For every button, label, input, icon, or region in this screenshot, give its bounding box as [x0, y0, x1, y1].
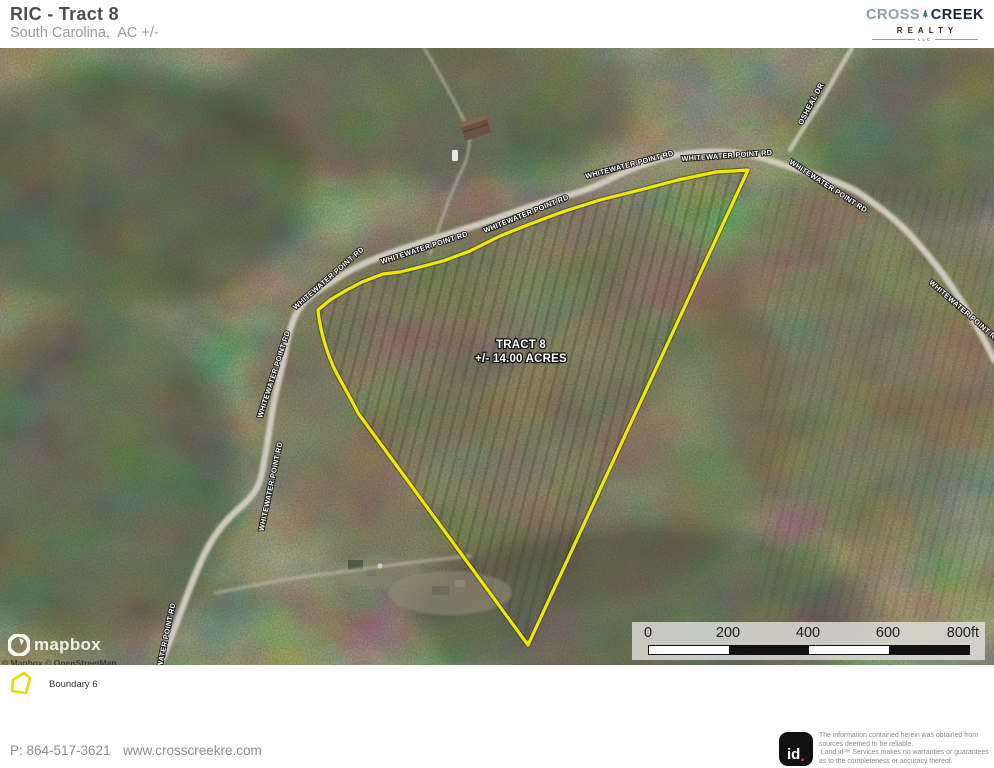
- land-id-badge-text: id: [787, 749, 800, 761]
- mapbox-icon: [8, 634, 30, 656]
- legend: Boundary 6: [0, 665, 994, 730]
- brand-llc-row: LLC: [866, 37, 984, 42]
- disclaimer-line: as to the completeness or accuracy there…: [819, 758, 994, 767]
- pine-tree-icon: [922, 3, 929, 24]
- boundary-polygon-icon: [8, 670, 34, 698]
- brand-logo: CROSS CREEK REALTY LLC: [866, 5, 984, 42]
- scale-segment: [889, 646, 969, 654]
- scale-tick: 400: [796, 625, 820, 641]
- scale-tick: 200: [716, 625, 740, 641]
- map-canvas[interactable]: TRACT 8 +/- 14.00 ACRES WHITEWATER POINT…: [0, 48, 994, 665]
- tract-label-acres: +/- 14.00 ACRES: [475, 353, 567, 365]
- page-subtitle: South Carolina, AC +/-: [10, 25, 159, 41]
- scale-tick: 600: [876, 625, 900, 641]
- brand-cross-text: CROSS: [866, 7, 920, 23]
- aerial-imagery: TRACT 8 +/- 14.00 ACRES WHITEWATER POINT…: [0, 48, 994, 665]
- brand-creek-text: CREEK: [931, 7, 984, 23]
- footer-phone: P: 864-517-3621: [10, 743, 111, 758]
- footer-website: www.crosscreekre.com: [123, 743, 262, 758]
- page-title: RIC - Tract 8: [10, 4, 119, 25]
- header: RIC - Tract 8 South Carolina, AC +/- CRO…: [0, 0, 994, 48]
- scale-segment: [649, 646, 729, 654]
- scale-bar: 0 200 400 600 800ft: [632, 622, 985, 660]
- scale-tick: 0: [644, 625, 652, 641]
- scale-tick: 800ft: [947, 625, 979, 641]
- page: RIC - Tract 8 South Carolina, AC +/- CRO…: [0, 0, 994, 768]
- disclaimer-line: sources deemed to be reliable.: [819, 741, 994, 750]
- footer-disclaimer: The information contained herein was obt…: [819, 732, 994, 766]
- footer: P: 864-517-3621 www.crosscreekre.com id …: [0, 730, 994, 768]
- map-attribution: © Mapbox © OpenStreetMap: [2, 658, 117, 665]
- mapbox-logo[interactable]: mapbox: [8, 634, 101, 656]
- mapbox-wordmark: mapbox: [34, 635, 101, 655]
- land-id-badge-dot: .: [800, 751, 805, 761]
- scale-bar-segments: [648, 645, 970, 655]
- scale-segment: [809, 646, 889, 654]
- legend-item-boundary[interactable]: Boundary 6: [8, 670, 98, 698]
- parked-car: [452, 150, 458, 161]
- land-id-badge: id .: [779, 732, 813, 766]
- brand-realty-text: REALTY: [866, 26, 984, 35]
- brand-llc-text: LLC: [918, 37, 932, 42]
- legend-item-label: Boundary 6: [49, 679, 98, 690]
- disclaimer-line: The information contained herein was obt…: [819, 732, 994, 741]
- tract-label-name: TRACT 8: [496, 339, 546, 351]
- disclaimer-line: Land id™ Services makes no warranties or…: [819, 749, 994, 758]
- scale-segment: [729, 646, 809, 654]
- divider: [872, 39, 915, 40]
- divider: [935, 39, 978, 40]
